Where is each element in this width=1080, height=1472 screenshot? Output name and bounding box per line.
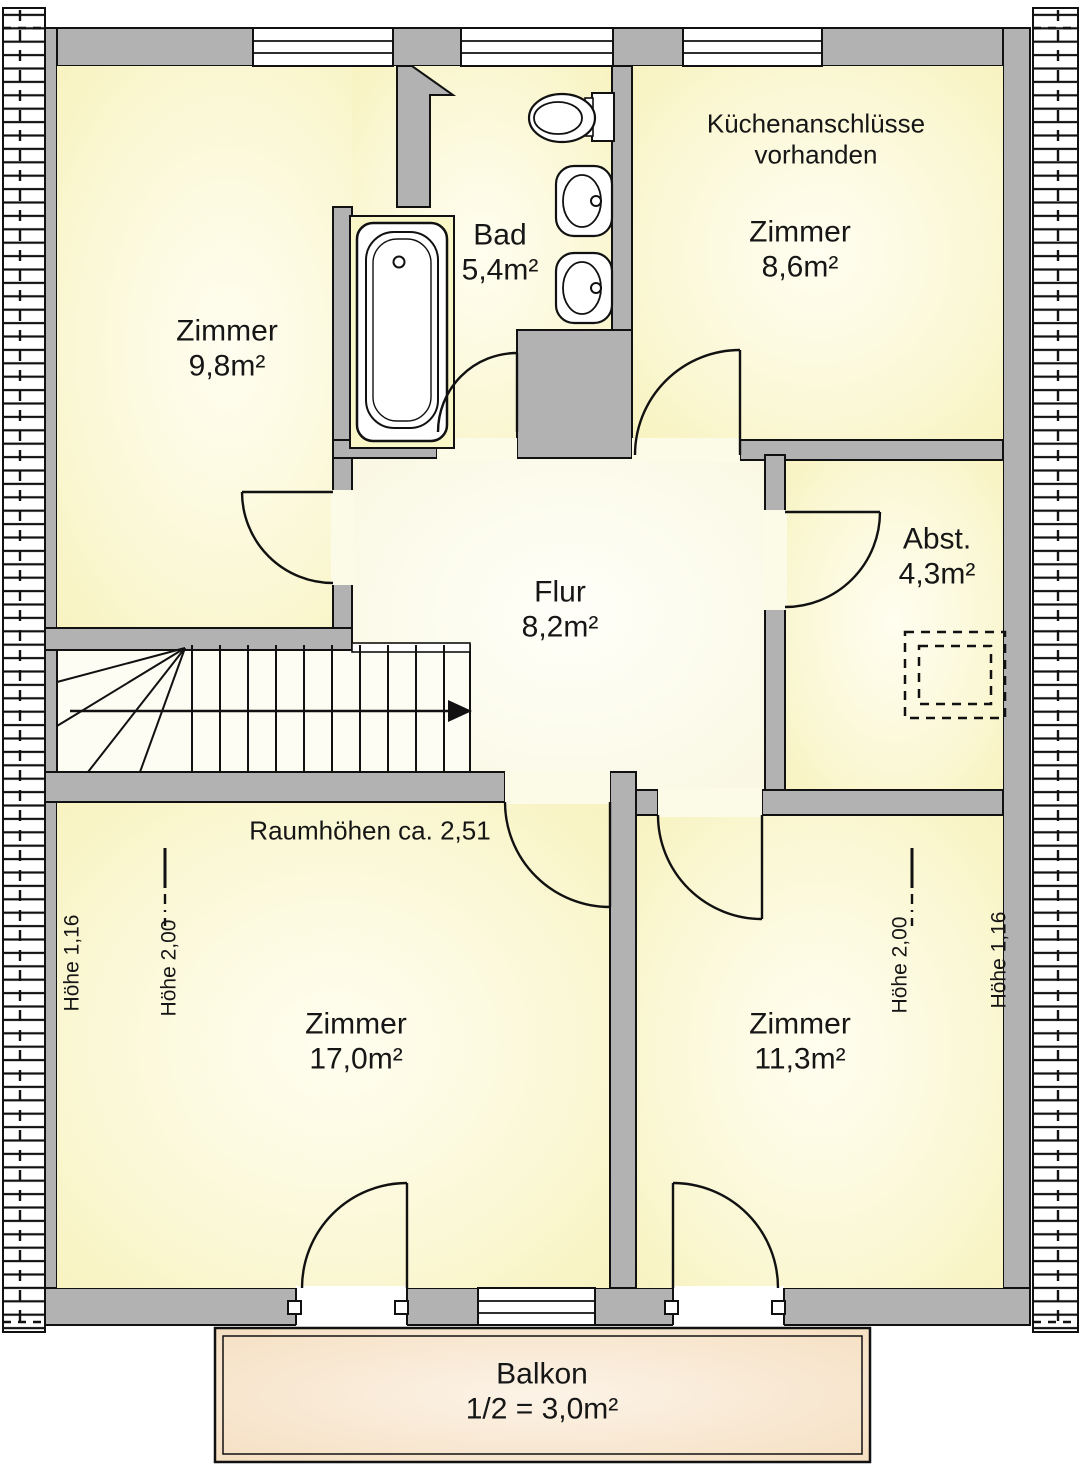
roof-eave-left xyxy=(3,8,45,1332)
height-mark-right-wall: Höhe 1,16 xyxy=(988,912,1013,1009)
staircase-floor xyxy=(57,645,470,772)
room-label-balkon: Balkon1/2 = 3,0m² xyxy=(466,1357,619,1428)
balcony-door-opening-left xyxy=(296,1286,407,1327)
room-floor-abstellraum xyxy=(785,455,1003,790)
balcony-door-opening-right xyxy=(673,1286,784,1327)
sink-icon xyxy=(556,166,612,236)
roof-eave-right xyxy=(1033,8,1078,1332)
floorplan-canvas: Zimmer9,8m² Bad5,4m² Zimmer8,6m² Küchena… xyxy=(0,0,1080,1472)
height-mark-left-wall: Höhe 1,16 xyxy=(61,915,86,1012)
window-top-left xyxy=(253,28,393,66)
kitchen-note: Küchenanschlüssevorhanden xyxy=(707,108,925,169)
room-label-zimmer-170: Zimmer17,0m² xyxy=(305,1007,407,1078)
stair-landing-edge xyxy=(352,643,470,652)
room-label-zimmer-86: Zimmer8,6m² xyxy=(749,215,851,286)
floorplan-drawing xyxy=(0,0,1080,1472)
window-bottom xyxy=(478,1288,595,1325)
ceiling-height-note: Raumhöhen ca. 2,51 xyxy=(249,816,490,847)
sink-icon xyxy=(556,253,612,323)
room-label-abstellraum: Abst.4,3m² xyxy=(899,522,976,593)
room-label-bad: Bad5,4m² xyxy=(462,218,539,289)
toilet-icon xyxy=(529,93,614,142)
window-top-right xyxy=(683,28,822,66)
room-label-zimmer-113: Zimmer11,3m² xyxy=(749,1007,851,1078)
height-mark-right-knee: Höhe 2,00 xyxy=(889,917,914,1014)
window-top-middle xyxy=(461,28,613,66)
room-label-flur: Flur8,2m² xyxy=(522,575,599,646)
height-mark-left-knee: Höhe 2,00 xyxy=(158,920,183,1017)
room-label-zimmer-98: Zimmer9,8m² xyxy=(176,314,278,385)
bathtub-icon xyxy=(350,216,454,448)
